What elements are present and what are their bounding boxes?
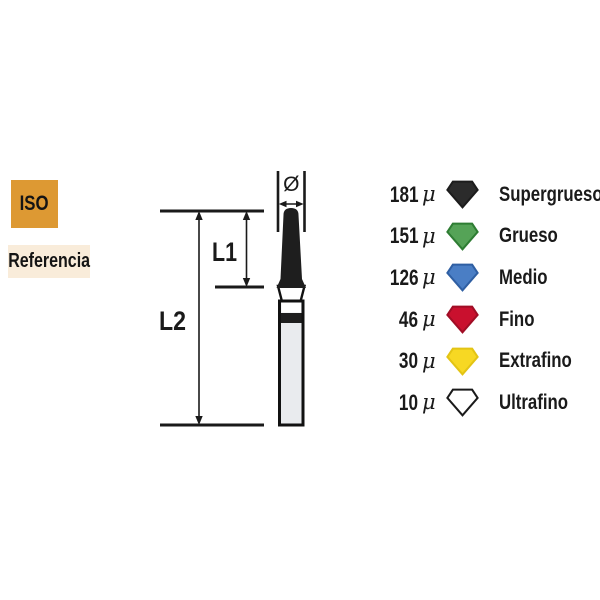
diameter-symbol: Ø [283, 173, 299, 196]
grit-size-value: 151 [390, 223, 418, 249]
diamond-icon [446, 222, 479, 251]
diameter-arrow-right [296, 201, 304, 208]
bur-diagram: Ø L1 L2 [150, 160, 322, 438]
diamond-shape [447, 348, 477, 374]
micron-unit: μ [422, 392, 437, 413]
grit-label: Ultrafino [499, 391, 568, 415]
grit-legend: 181 μ Supergrueso 151 μ Grueso 126 μ Med… [382, 174, 600, 424]
micron-unit: μ [422, 351, 437, 372]
legend-row: 151 μ Grueso [382, 216, 600, 258]
micron-unit: μ [422, 184, 437, 205]
grit-size-value: 46 [390, 307, 418, 333]
grit-label: Fino [499, 308, 534, 332]
bur-diamond-tip [277, 208, 307, 288]
micron-unit: μ [422, 267, 437, 288]
grit-label: Supergrueso [499, 183, 600, 207]
bur-neck [278, 286, 305, 302]
micron-unit: μ [422, 309, 437, 330]
diamond-shape [447, 182, 477, 208]
legend-row: 46 μ Fino [382, 299, 600, 341]
diamond-icon [446, 305, 479, 334]
diamond-icon [446, 347, 479, 376]
referencia-badge-label: Referencia [8, 250, 90, 273]
diamond-shape [447, 307, 477, 333]
legend-row: 10 μ Ultrafino [382, 382, 600, 424]
legend-row: 30 μ Extrafino [382, 340, 600, 382]
iso-badge-label: ISO [20, 192, 49, 216]
legend-row: 181 μ Supergrueso [382, 174, 600, 216]
bur-color-band [281, 313, 302, 323]
l1-label: L1 [212, 237, 237, 267]
grit-label: Medio [499, 266, 548, 290]
grit-size-value: 126 [390, 265, 418, 291]
referencia-badge: Referencia [8, 245, 90, 278]
diamond-icon [446, 180, 479, 209]
grit-label: Extrafino [499, 349, 572, 373]
micron-unit: μ [422, 226, 437, 247]
diamond-shape [447, 265, 477, 291]
grit-size-value: 10 [390, 390, 418, 416]
grit-label: Grueso [499, 224, 558, 248]
diamond-shape [447, 390, 477, 416]
diamond-icon [446, 263, 479, 292]
l2-label: L2 [159, 306, 186, 336]
diamond-shape [447, 224, 477, 250]
diamond-icon [446, 388, 479, 417]
diameter-arrow-left [279, 201, 287, 208]
legend-row: 126 μ Medio [382, 257, 600, 299]
bur-shank-white-band [282, 303, 302, 313]
grit-size-value: 30 [390, 348, 418, 374]
grit-size-value: 181 [390, 182, 418, 208]
iso-badge: ISO [11, 180, 58, 228]
